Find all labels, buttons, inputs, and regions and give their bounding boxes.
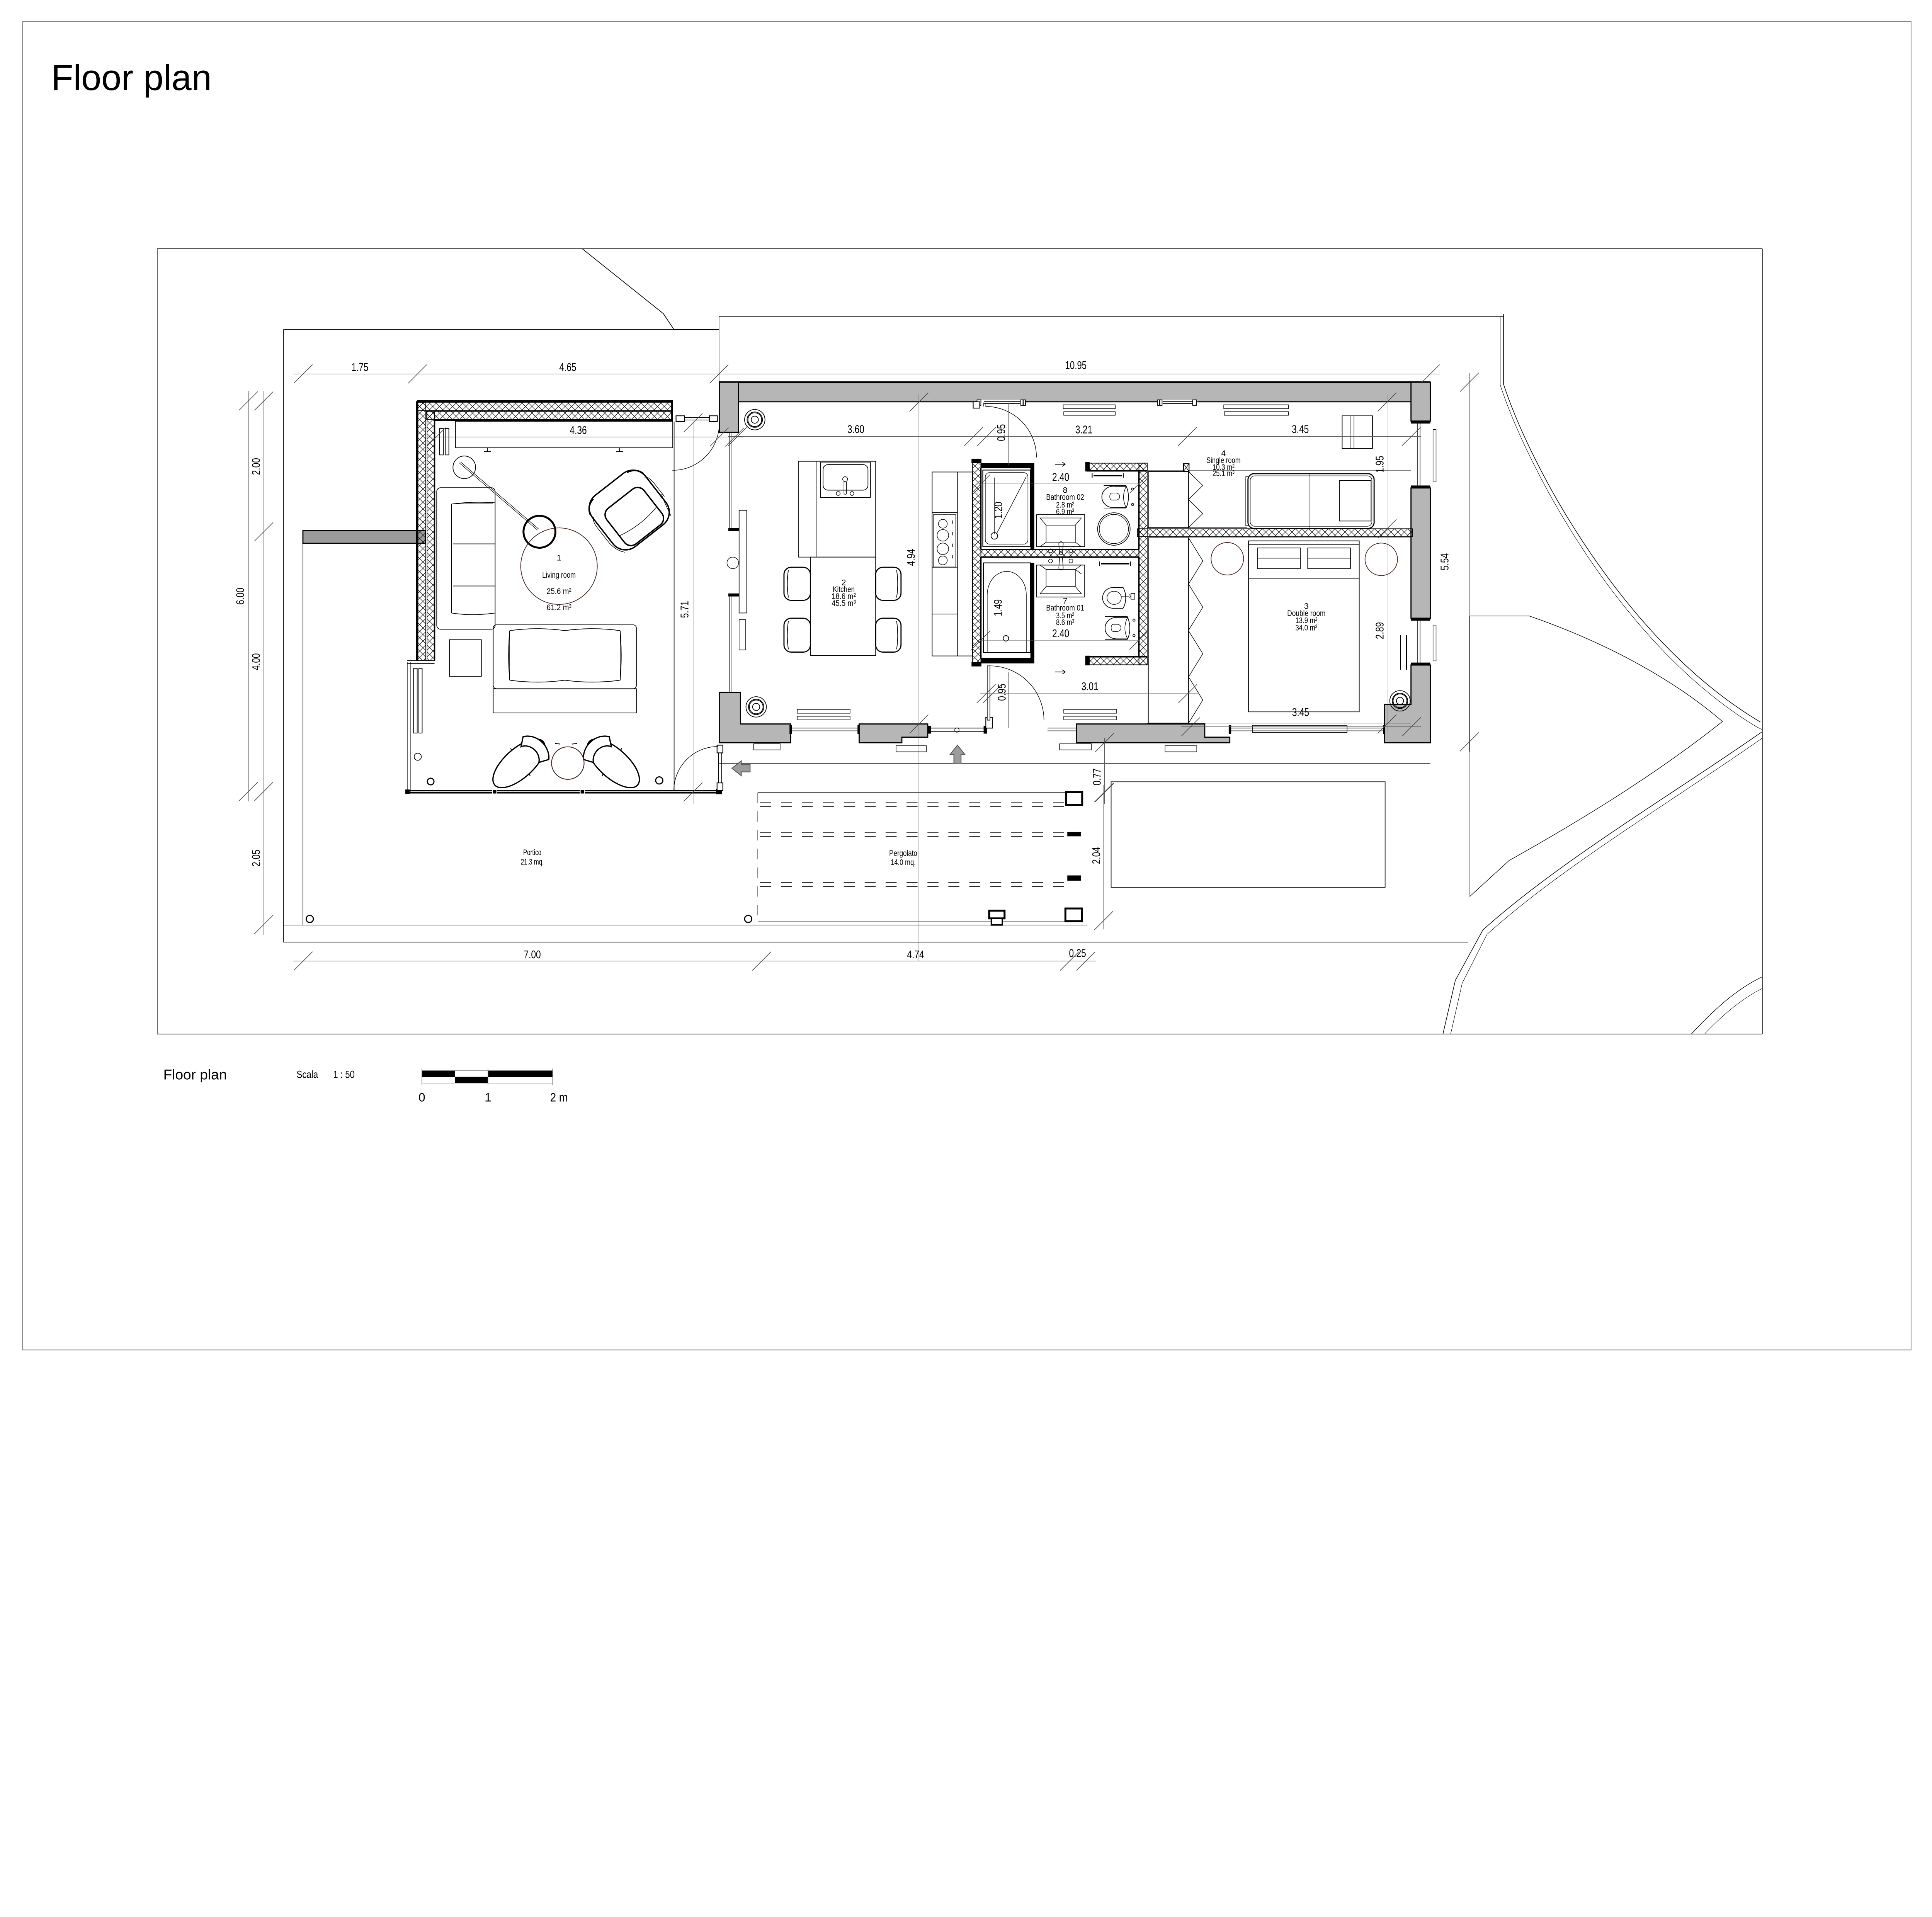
svg-text:2.04: 2.04 (1090, 847, 1103, 864)
svg-text:3.01: 3.01 (1082, 680, 1099, 693)
svg-text:6.00: 6.00 (234, 588, 247, 605)
svg-text:1: 1 (485, 1091, 491, 1104)
svg-text:3.45: 3.45 (1292, 423, 1309, 435)
svg-text:2.05: 2.05 (250, 850, 263, 867)
svg-text:4.00: 4.00 (250, 653, 263, 670)
svg-text:3.60: 3.60 (847, 423, 864, 435)
svg-text:61.2 m³: 61.2 m³ (547, 603, 571, 612)
svg-text:1 : 50: 1 : 50 (333, 1068, 355, 1080)
svg-text:Living room: Living room (542, 570, 576, 580)
svg-text:4.36: 4.36 (570, 424, 587, 437)
svg-text:2.40: 2.40 (1052, 628, 1069, 640)
svg-text:2.89: 2.89 (1374, 622, 1386, 639)
svg-text:8.6 m³: 8.6 m³ (1056, 618, 1074, 627)
svg-text:2 m: 2 m (550, 1091, 568, 1104)
svg-text:34.0 m³: 34.0 m³ (1295, 623, 1317, 632)
svg-text:3.21: 3.21 (1075, 424, 1092, 436)
svg-text:Pergolato: Pergolato (889, 849, 917, 858)
svg-text:25.6 m²: 25.6 m² (547, 587, 571, 596)
svg-text:21.3 mq.: 21.3 mq. (521, 857, 544, 867)
svg-text:0.25: 0.25 (1069, 947, 1086, 959)
svg-text:Portico: Portico (523, 848, 541, 857)
svg-text:5.54: 5.54 (1439, 553, 1451, 570)
svg-text:Scala: Scala (297, 1068, 318, 1080)
svg-text:2.40: 2.40 (1052, 471, 1069, 483)
svg-text:0.95: 0.95 (996, 684, 1009, 701)
svg-text:0: 0 (418, 1091, 425, 1104)
svg-text:0.95: 0.95 (995, 424, 1008, 441)
svg-text:4.94: 4.94 (905, 549, 917, 566)
svg-text:Floor plan: Floor plan (163, 1067, 227, 1083)
svg-text:3.45: 3.45 (1292, 706, 1309, 719)
svg-text:5.71: 5.71 (679, 601, 691, 618)
svg-text:25.1 m³: 25.1 m³ (1213, 469, 1235, 478)
svg-text:4.65: 4.65 (559, 361, 576, 374)
svg-text:1.95: 1.95 (1374, 456, 1386, 473)
svg-text:10.95: 10.95 (1065, 359, 1087, 372)
svg-text:1: 1 (557, 553, 561, 562)
svg-text:Floor plan: Floor plan (51, 57, 212, 98)
svg-text:1.20: 1.20 (992, 502, 1005, 519)
svg-text:45.5 m³: 45.5 m³ (832, 599, 856, 608)
svg-text:6.9 m³: 6.9 m³ (1056, 507, 1074, 516)
svg-text:7.00: 7.00 (524, 949, 541, 961)
svg-text:1.49: 1.49 (992, 599, 1005, 616)
svg-text:0.77: 0.77 (1091, 768, 1103, 785)
svg-text:1.75: 1.75 (351, 361, 368, 374)
svg-text:2.00: 2.00 (250, 458, 263, 475)
svg-text:4.74: 4.74 (907, 949, 924, 961)
svg-text:14.0 mq.: 14.0 mq. (891, 857, 916, 867)
